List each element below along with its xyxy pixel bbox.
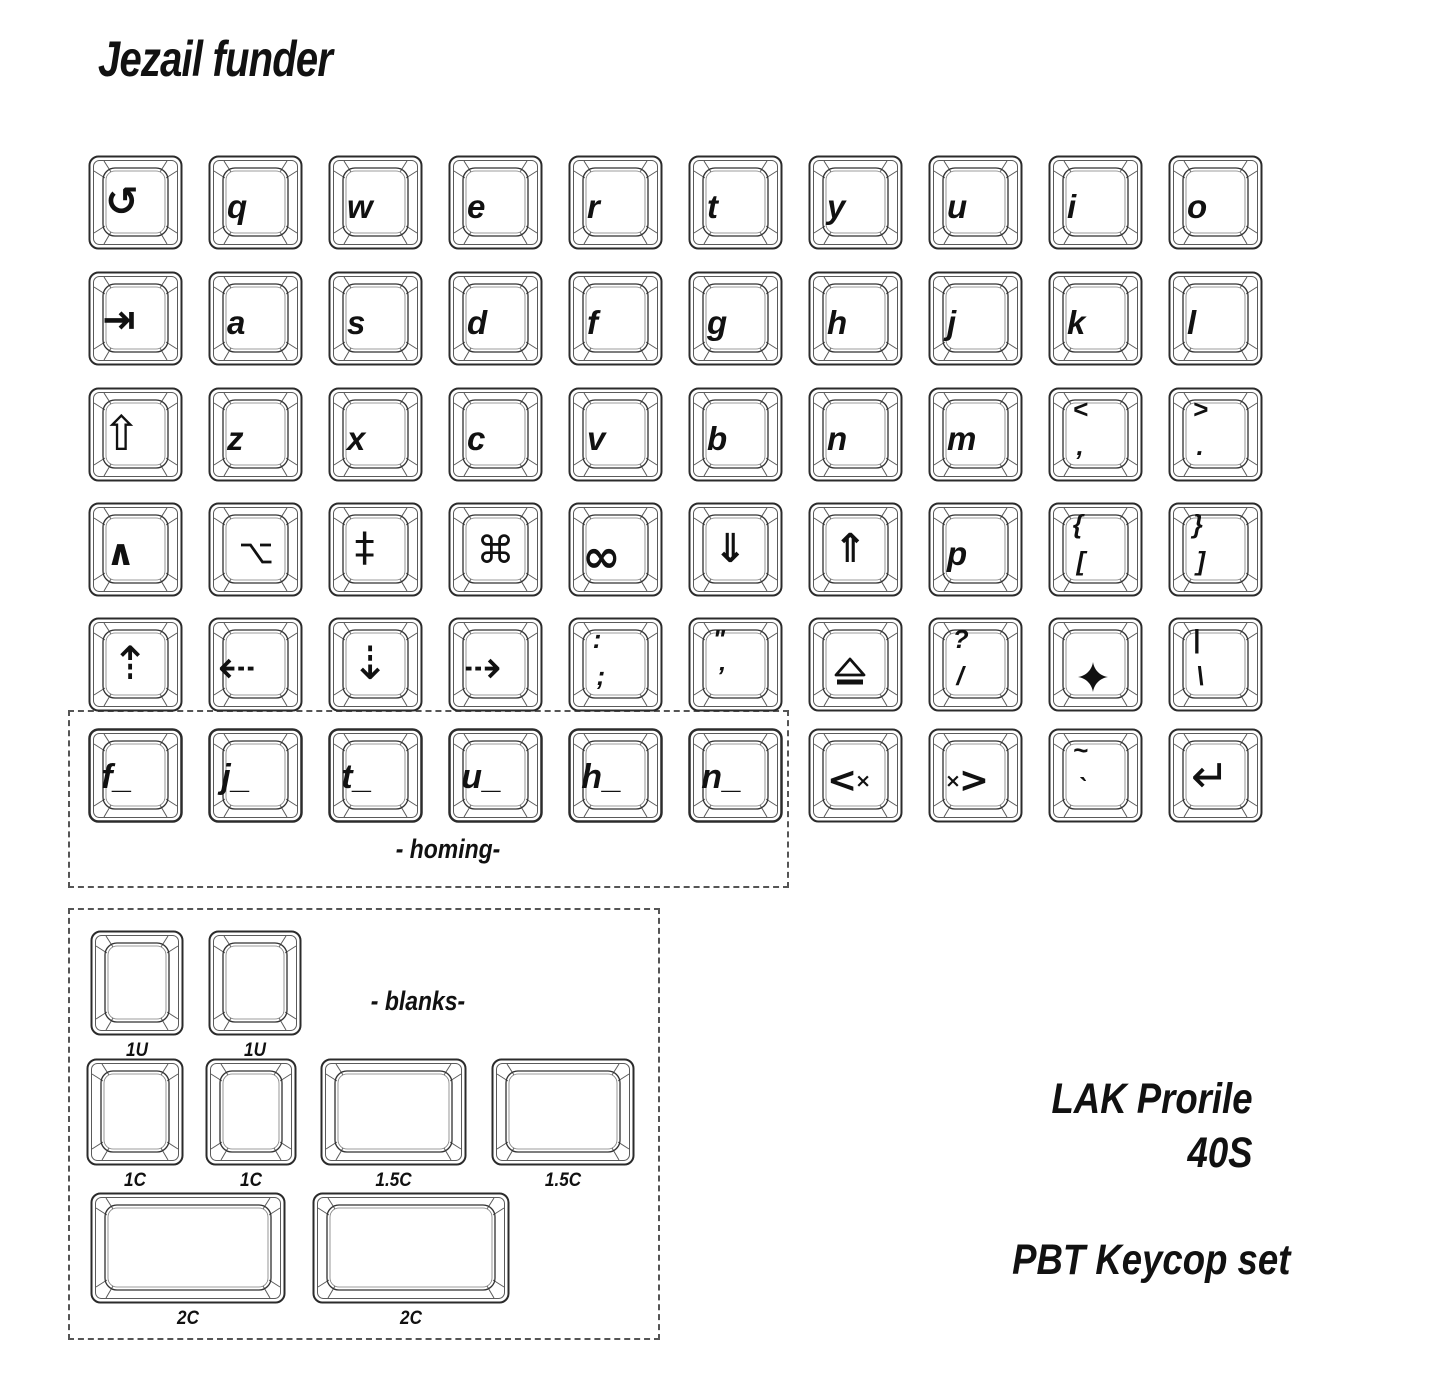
key-legend-bottom: . xyxy=(1197,433,1204,459)
key-legend: f xyxy=(587,306,598,339)
homing-u-key: u_ xyxy=(448,728,543,823)
double-dagger-key: ‡ xyxy=(328,502,423,597)
blanks-group-label: - blanks- xyxy=(371,986,465,1017)
undo-key: ↺ xyxy=(88,155,183,250)
key-legend-bottom: [ xyxy=(1077,548,1086,574)
shift-icon: ⇧ xyxy=(101,410,141,458)
key-legend-bottom: ’ xyxy=(717,663,724,689)
key-legend: m xyxy=(947,422,976,455)
key-legend: u_ xyxy=(461,760,503,794)
o-key: o xyxy=(1168,155,1263,250)
r-key: r xyxy=(568,155,663,250)
dashed-right-arrow-icon: ⇢ xyxy=(463,644,502,690)
delete-forward-icon: ×> xyxy=(947,763,989,799)
q-key: q xyxy=(208,155,303,250)
double-up-arrow-icon: ⇑ xyxy=(834,529,868,569)
key-legend: e xyxy=(467,190,485,223)
w-key: w xyxy=(328,155,423,250)
command-icon: ⌘ xyxy=(477,531,515,569)
key-legend: u xyxy=(947,190,967,223)
v-key: v xyxy=(568,387,663,482)
key-legend: h_ xyxy=(581,760,623,794)
blank-size-label: 1C xyxy=(91,1170,179,1192)
x-key: x xyxy=(328,387,423,482)
key-legend: r xyxy=(587,190,600,223)
period-key: >. xyxy=(1168,387,1263,482)
g-key: g xyxy=(688,271,783,366)
blank-1u-right: 1U xyxy=(208,930,302,1036)
a-key: a xyxy=(208,271,303,366)
key-legend-top: " xyxy=(713,626,725,652)
blank-1u-left: 1U xyxy=(90,930,184,1036)
key-legend: c xyxy=(467,422,485,455)
profile-size: 40S xyxy=(1052,1126,1253,1180)
infinity-key: ∞ xyxy=(568,502,663,597)
key-legend-bottom: ] xyxy=(1197,548,1206,574)
homing-h-key: h_ xyxy=(568,728,663,823)
z-key: z xyxy=(208,387,303,482)
blank-size-label: 1C xyxy=(210,1170,293,1192)
dashed-down-arrow-icon: ⇣ xyxy=(351,640,390,686)
t-key: t xyxy=(688,155,783,250)
key-legend: l xyxy=(1187,306,1196,339)
profile-name: LAK Prorile xyxy=(1052,1072,1253,1126)
d-key: d xyxy=(448,271,543,366)
blank-2c-right: 2C xyxy=(312,1192,510,1304)
blank-size-label: 2C xyxy=(322,1308,500,1330)
i-key: i xyxy=(1048,155,1143,250)
backspace-icon: <× xyxy=(827,763,869,799)
dashed-left-arrow-icon: ⇠ xyxy=(218,644,257,690)
eject-key xyxy=(808,617,903,712)
star-key xyxy=(1048,617,1143,712)
left-arrow-key: ⇠ xyxy=(208,617,303,712)
key-legend: k xyxy=(1067,306,1085,339)
double-down-arrow-icon: ⇓ xyxy=(714,529,748,569)
semicolon-key: :; xyxy=(568,617,663,712)
infinity-icon: ∞ xyxy=(582,533,620,579)
tilde-key: ~` xyxy=(1048,728,1143,823)
open-bracket-key: {[ xyxy=(1048,502,1143,597)
control-key: ∧ xyxy=(88,502,183,597)
j-key: j xyxy=(928,271,1023,366)
key-legend-top: } xyxy=(1193,511,1203,537)
keycap-spec-sheet: Jezail funder - homing- - blanks- ↺qwert… xyxy=(0,0,1445,1373)
close-bracket-key: }] xyxy=(1168,502,1263,597)
blank-2c-left: 2C xyxy=(90,1192,286,1304)
backspace-key: <× xyxy=(808,728,903,823)
key-legend: o xyxy=(1187,190,1207,223)
h-key: h xyxy=(808,271,903,366)
key-legend-bottom: ; xyxy=(597,663,606,689)
key-legend: j_ xyxy=(221,760,251,794)
blank-1-5c-right: 1.5C xyxy=(491,1058,635,1166)
command-key: ⌘ xyxy=(448,502,543,597)
glyph-part: × xyxy=(855,772,871,791)
return-key: ↵ xyxy=(1168,728,1263,823)
key-legend: f_ xyxy=(101,760,133,794)
key-legend: d xyxy=(467,306,487,339)
key-legend: z xyxy=(227,422,244,455)
key-legend-bottom: , xyxy=(1077,433,1084,459)
comma-key: <, xyxy=(1048,387,1143,482)
page-down-key: ⇓ xyxy=(688,502,783,597)
delete-forward-key: ×> xyxy=(928,728,1023,823)
key-legend: j xyxy=(947,306,956,339)
key-legend: v xyxy=(587,422,605,455)
homing-n-key: n_ xyxy=(688,728,783,823)
key-legend-bottom: ` xyxy=(1077,774,1086,800)
key-legend-top: < xyxy=(1073,396,1088,422)
e-key: e xyxy=(448,155,543,250)
profile-info: LAK Prorile 40S xyxy=(1052,1072,1253,1180)
f-key: f xyxy=(568,271,663,366)
right-arrow-key: ⇢ xyxy=(448,617,543,712)
glyph-part: > xyxy=(959,763,989,799)
p-key: p xyxy=(928,502,1023,597)
key-legend-top: ~ xyxy=(1073,737,1088,763)
key-legend: q xyxy=(227,190,247,223)
down-arrow-key: ⇣ xyxy=(328,617,423,712)
quote-key: "’ xyxy=(688,617,783,712)
control-icon: ∧ xyxy=(106,536,135,572)
key-legend: h xyxy=(827,306,847,339)
key-legend: s xyxy=(347,306,365,339)
return-icon: ↵ xyxy=(1191,753,1230,799)
key-legend-top: { xyxy=(1073,511,1083,537)
key-legend-top: > xyxy=(1193,396,1208,422)
c-key: c xyxy=(448,387,543,482)
key-legend-bottom: / xyxy=(957,663,964,689)
blank-size-label: 2C xyxy=(100,1308,276,1330)
blank-size-label: 1.5C xyxy=(327,1170,459,1192)
key-legend-top: : xyxy=(593,626,602,652)
s-key: s xyxy=(328,271,423,366)
y-key: y xyxy=(808,155,903,250)
key-legend: t_ xyxy=(341,760,373,794)
l-key: l xyxy=(1168,271,1263,366)
key-legend: b xyxy=(707,422,727,455)
key-legend: t xyxy=(707,190,718,223)
pipe-key: |\ xyxy=(1168,617,1263,712)
homing-f-key: f_ xyxy=(88,728,183,823)
key-legend: a xyxy=(227,306,245,339)
tab-key: ⇥ xyxy=(88,271,183,366)
slash-key: ?/ xyxy=(928,617,1023,712)
key-legend-bottom: \ xyxy=(1197,663,1204,689)
key-legend-top: ? xyxy=(953,626,969,652)
option-key xyxy=(208,502,303,597)
key-legend: w xyxy=(347,190,373,223)
key-legend: n xyxy=(827,422,847,455)
material-info: PBT Keycop set xyxy=(1012,1236,1290,1285)
u-key: u xyxy=(928,155,1023,250)
glyph-part: < xyxy=(827,763,857,799)
key-legend: y xyxy=(827,190,845,223)
blank-1c-left: 1C xyxy=(86,1058,184,1166)
double-dagger-icon: ‡ xyxy=(355,528,375,568)
k-key: k xyxy=(1048,271,1143,366)
key-legend: p xyxy=(947,537,967,570)
blank-1c-right: 1C xyxy=(205,1058,297,1166)
undo-icon: ↺ xyxy=(105,182,139,222)
tab-icon: ⇥ xyxy=(102,300,136,340)
shift-key: ⇧ xyxy=(88,387,183,482)
dashed-up-arrow-icon: ⇡ xyxy=(111,640,150,686)
key-legend-top: | xyxy=(1193,626,1200,652)
key-legend: x xyxy=(347,422,365,455)
key-legend: g xyxy=(707,306,727,339)
up-arrow-key: ⇡ xyxy=(88,617,183,712)
homing-j-key: j_ xyxy=(208,728,303,823)
key-legend: i xyxy=(1067,190,1076,223)
b-key: b xyxy=(688,387,783,482)
blank-1-5c-left: 1.5C xyxy=(320,1058,467,1166)
blank-size-label: 1.5C xyxy=(498,1170,628,1192)
key-legend: n_ xyxy=(701,760,743,794)
page-title: Jezail funder xyxy=(98,30,332,88)
homing-group-label: - homing- xyxy=(396,834,501,865)
m-key: m xyxy=(928,387,1023,482)
page-up-key: ⇑ xyxy=(808,502,903,597)
n-key: n xyxy=(808,387,903,482)
homing-t-key: t_ xyxy=(328,728,423,823)
